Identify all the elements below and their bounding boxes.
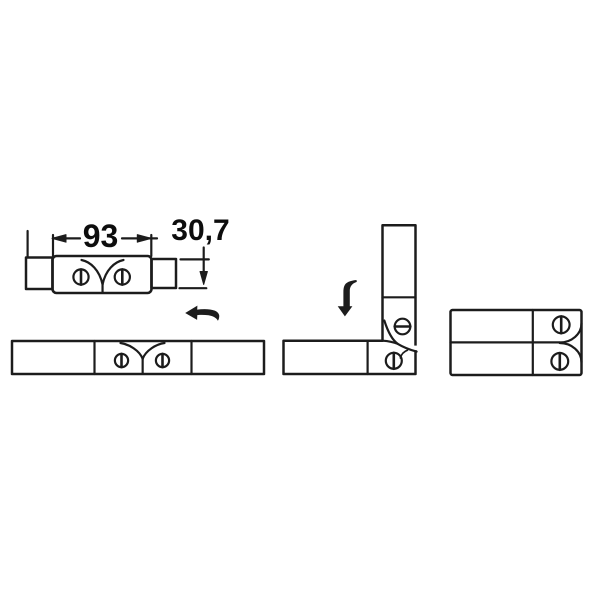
svg-text:30,7: 30,7 xyxy=(171,214,229,247)
svg-text:93: 93 xyxy=(83,218,119,254)
